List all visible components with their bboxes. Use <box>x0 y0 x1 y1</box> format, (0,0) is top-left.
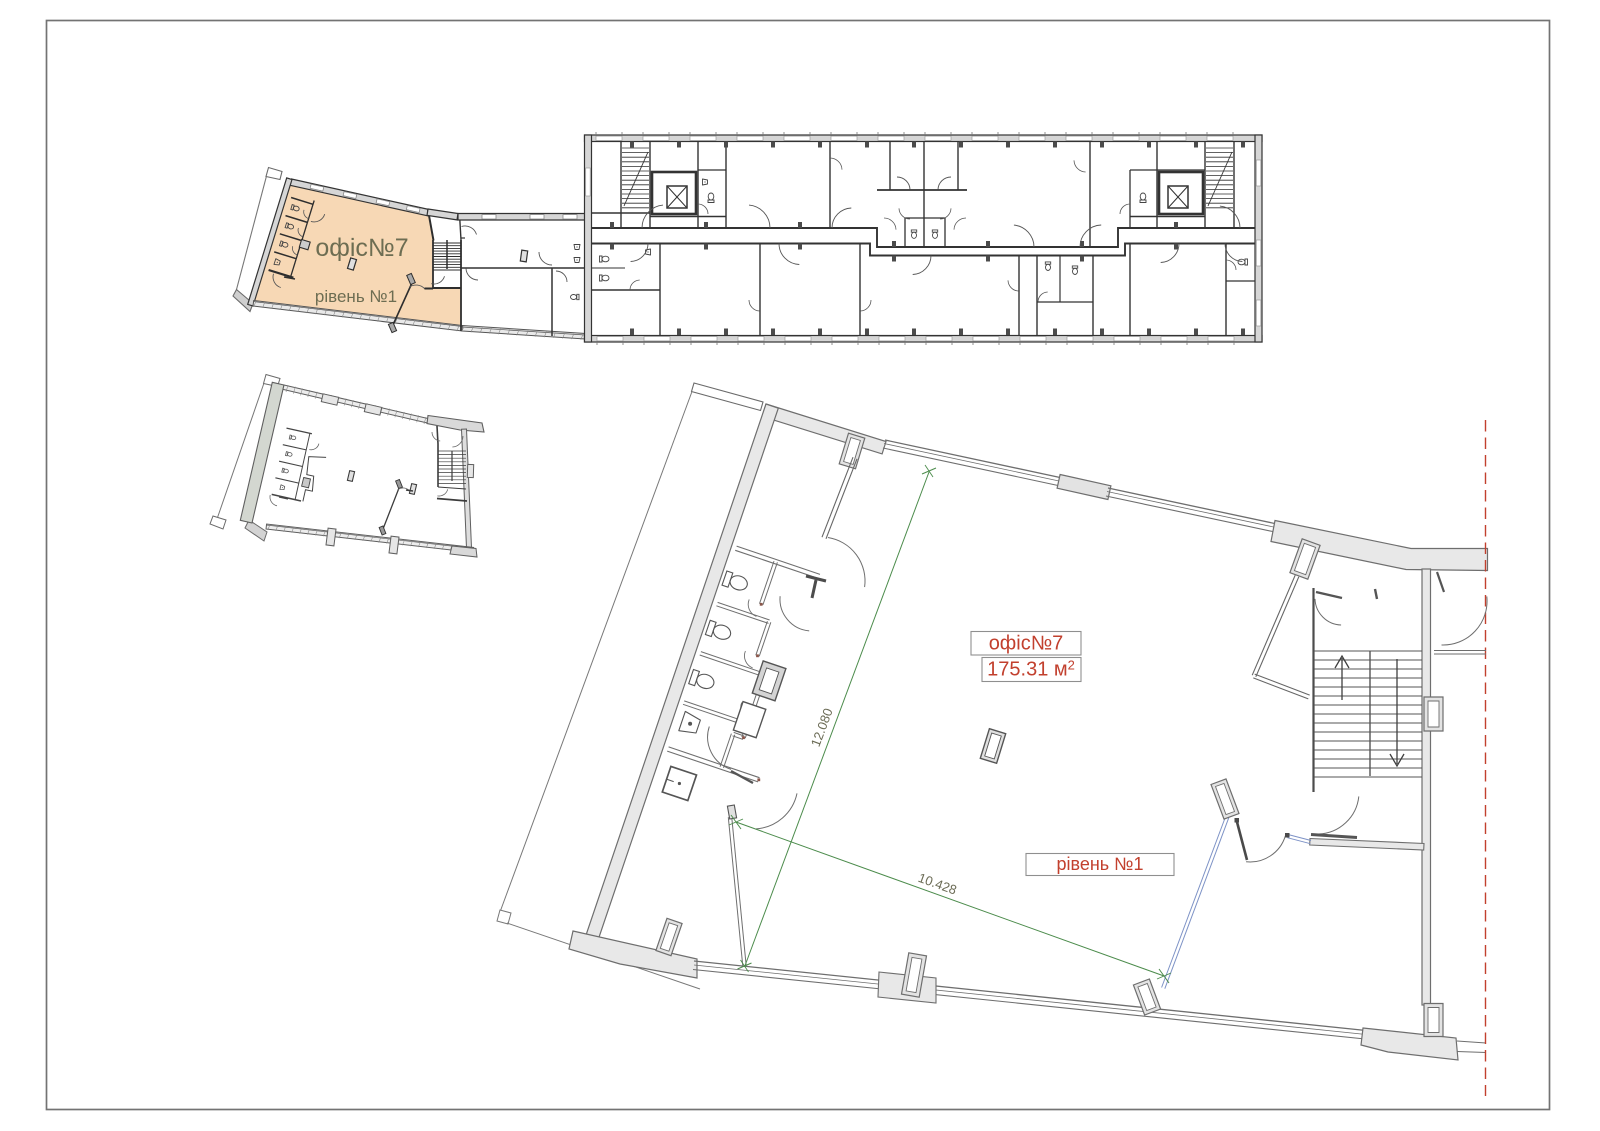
svg-text:рівень №1: рівень №1 <box>1056 854 1143 874</box>
svg-text:рівень №1: рівень №1 <box>315 287 397 306</box>
svg-text:офіс№7: офіс№7 <box>989 633 1064 655</box>
svg-text:175.31 м2: 175.31 м2 <box>987 658 1075 681</box>
svg-text:офіс№7: офіс№7 <box>315 234 408 262</box>
